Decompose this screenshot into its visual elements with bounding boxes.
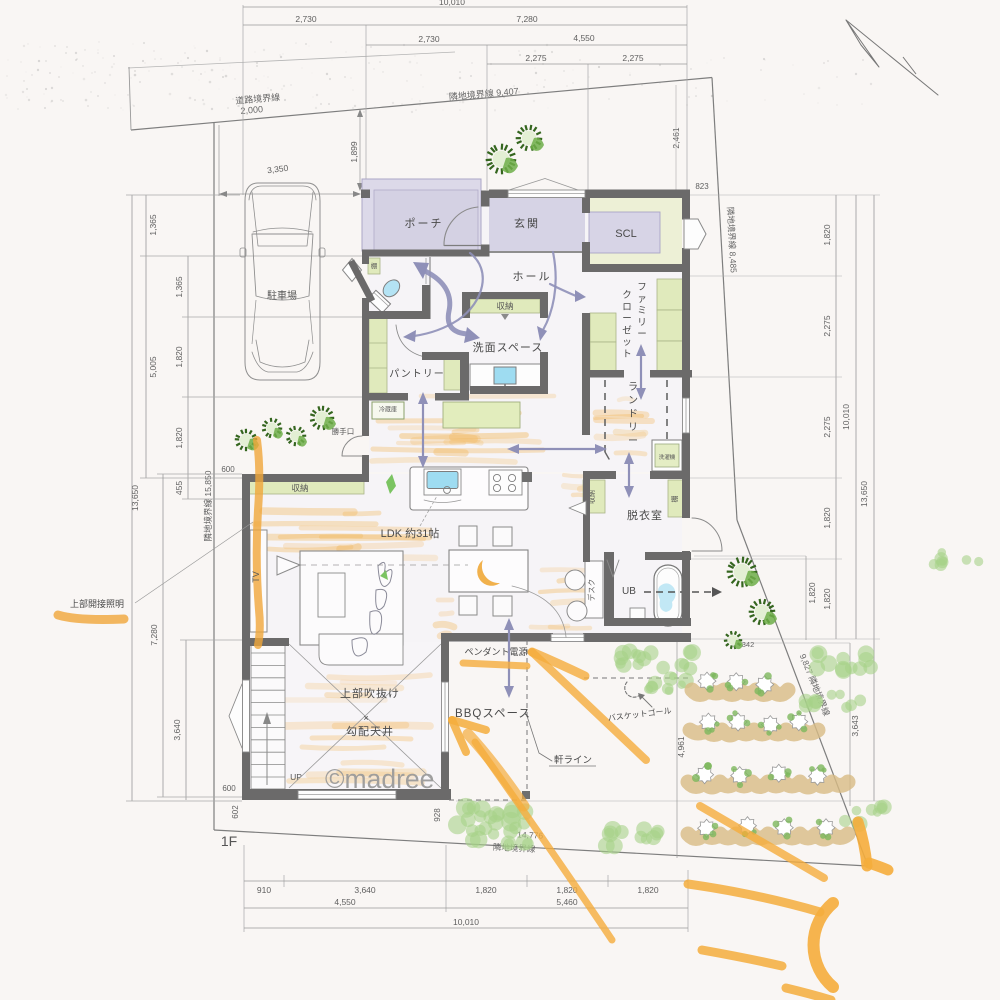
svg-text:4,550: 4,550 [573,33,595,43]
svg-text:1,820: 1,820 [822,588,832,610]
svg-text:上部開接照明: 上部開接照明 [70,598,124,609]
svg-text:BBQスペース: BBQスペース [455,708,531,720]
svg-text:リ: リ [628,423,638,434]
svg-text:SCL: SCL [615,228,636,240]
svg-text:4,961: 4,961 [676,736,686,758]
svg-text:7,280: 7,280 [149,624,159,646]
svg-text:パントリー: パントリー [389,368,445,380]
svg-text:軒ライン: 軒ライン [554,755,592,766]
svg-text:455: 455 [174,481,184,495]
svg-text:7,280: 7,280 [516,14,538,24]
svg-text:ポーチ: ポーチ [405,217,444,230]
svg-text:1,365: 1,365 [174,276,184,298]
svg-text:デスク: デスク [586,579,596,602]
svg-text:ミ: ミ [637,306,647,317]
svg-text:勝手口: 勝手口 [332,426,355,436]
svg-text:ロ: ロ [622,302,632,313]
svg-text:600: 600 [221,465,235,474]
svg-text:10,010: 10,010 [439,0,465,7]
svg-text:リ: リ [637,317,647,328]
svg-text:棚: 棚 [371,261,378,270]
svg-text:ラ: ラ [628,381,638,393]
svg-text:ト: ト [622,349,632,360]
svg-text:1F: 1F [221,833,237,849]
svg-text:UB: UB [622,586,636,597]
svg-text:フ: フ [637,282,647,293]
svg-text:勾配天井: 勾配天井 [346,724,394,738]
svg-text:LDK 約31帖: LDK 約31帖 [381,526,440,540]
svg-text:910: 910 [257,885,271,895]
svg-text:2,275: 2,275 [822,315,832,337]
svg-text:ク: ク [622,290,632,301]
svg-text:823: 823 [695,182,709,191]
svg-text:602: 602 [231,805,240,819]
svg-text:1,820: 1,820 [174,427,184,449]
svg-text:収納: 収納 [496,301,513,311]
svg-text:2,275: 2,275 [622,53,644,63]
svg-text:2,730: 2,730 [295,14,317,24]
svg-text:5,460: 5,460 [556,897,578,907]
svg-text:1,820: 1,820 [475,885,497,895]
svg-text:駐車場: 駐車場 [267,289,297,302]
svg-text:2,730: 2,730 [418,34,440,44]
svg-text:©madree: ©madree [325,764,434,794]
svg-text:342: 342 [742,640,755,649]
svg-text:10,010: 10,010 [453,917,479,927]
svg-text:ド: ド [628,409,638,420]
svg-text:ー: ー [628,436,638,447]
svg-text:上部吹抜け: 上部吹抜け [340,686,400,700]
svg-text:928: 928 [433,808,442,822]
svg-text:洗面スペース: 洗面スペース [473,341,544,354]
svg-text:ァ: ァ [637,294,647,305]
svg-text:1,820: 1,820 [807,582,817,604]
svg-text:3,640: 3,640 [172,719,182,741]
svg-text:3,643: 3,643 [850,715,860,737]
svg-text:3,640: 3,640 [354,885,376,895]
svg-text:1,365: 1,365 [148,214,158,236]
svg-text:玄関: 玄関 [514,216,540,230]
svg-text:600: 600 [222,784,236,793]
svg-text:2,275: 2,275 [525,53,547,63]
svg-text:10,010: 10,010 [841,404,851,430]
svg-text:脱衣室: 脱衣室 [627,508,663,522]
svg-text:ー: ー [637,329,647,340]
svg-text:4,550: 4,550 [334,897,356,907]
svg-text:ー: ー [622,314,632,325]
svg-text:13,650: 13,650 [130,485,140,511]
svg-text:洗濯機: 洗濯機 [659,453,676,461]
svg-text:隣地境界線 15,850: 隣地境界線 15,850 [203,470,213,541]
svg-text:13,650: 13,650 [859,481,869,507]
svg-text:×: × [363,713,368,723]
svg-text:ペンダント電源: ペンダント電源 [464,646,527,657]
svg-text:棚: 棚 [670,496,679,503]
svg-text:TV: TV [251,571,261,583]
svg-text:ゼ: ゼ [622,324,632,336]
svg-text:1,820: 1,820 [822,507,832,529]
svg-text:1,820: 1,820 [174,346,184,368]
svg-text:1,820: 1,820 [637,885,659,895]
svg-text:1,820: 1,820 [822,224,832,246]
svg-text:ッ: ッ [622,337,632,348]
svg-text:2,000: 2,000 [240,104,263,116]
svg-text:1,899: 1,899 [349,141,359,163]
svg-text:冷蔵庫: 冷蔵庫 [379,406,397,414]
svg-text:5,005: 5,005 [148,356,158,378]
svg-text:ホール: ホール [513,270,552,283]
svg-text:2,275: 2,275 [822,416,832,438]
svg-text:ン: ン [628,396,638,407]
svg-text:収納: 収納 [291,483,308,493]
